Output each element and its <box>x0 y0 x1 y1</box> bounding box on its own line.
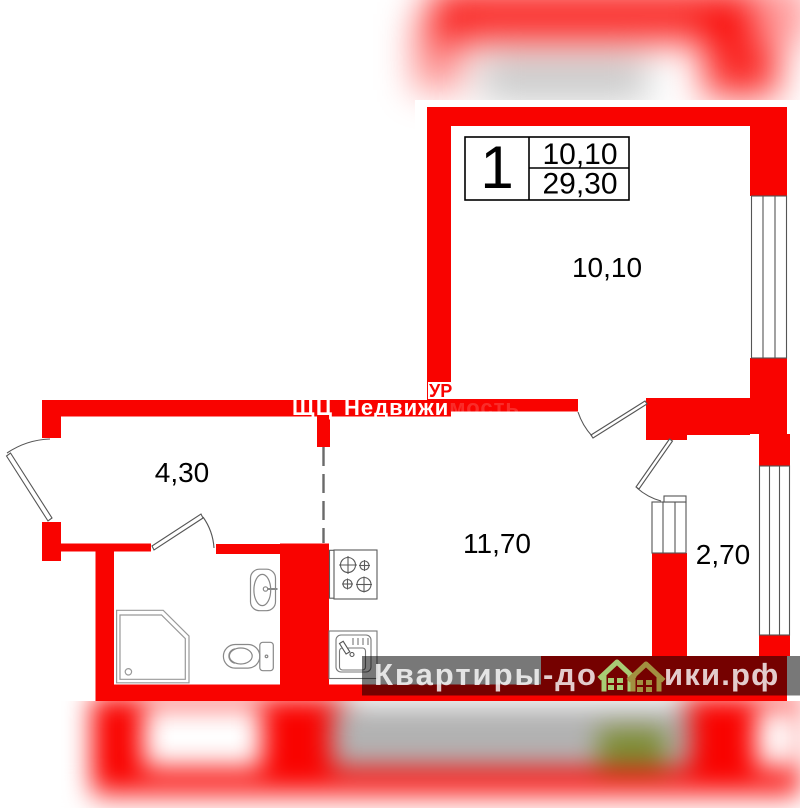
svg-text:4,30: 4,30 <box>155 457 210 488</box>
svg-text:ики.рф: ики.рф <box>664 657 780 692</box>
svg-text:ЩЦ: ЩЦ <box>292 395 334 420</box>
svg-text:10,10: 10,10 <box>542 138 617 171</box>
svg-text:2,70: 2,70 <box>696 539 751 570</box>
svg-text:Квартиры-до: Квартиры-до <box>374 657 598 692</box>
svg-text:Недвижимость: Недвижимость <box>344 395 520 420</box>
svg-text:10,10: 10,10 <box>572 252 642 283</box>
svg-text:11,70: 11,70 <box>463 528 531 559</box>
svg-text:1: 1 <box>480 134 513 201</box>
svg-text:29,30: 29,30 <box>542 168 617 201</box>
